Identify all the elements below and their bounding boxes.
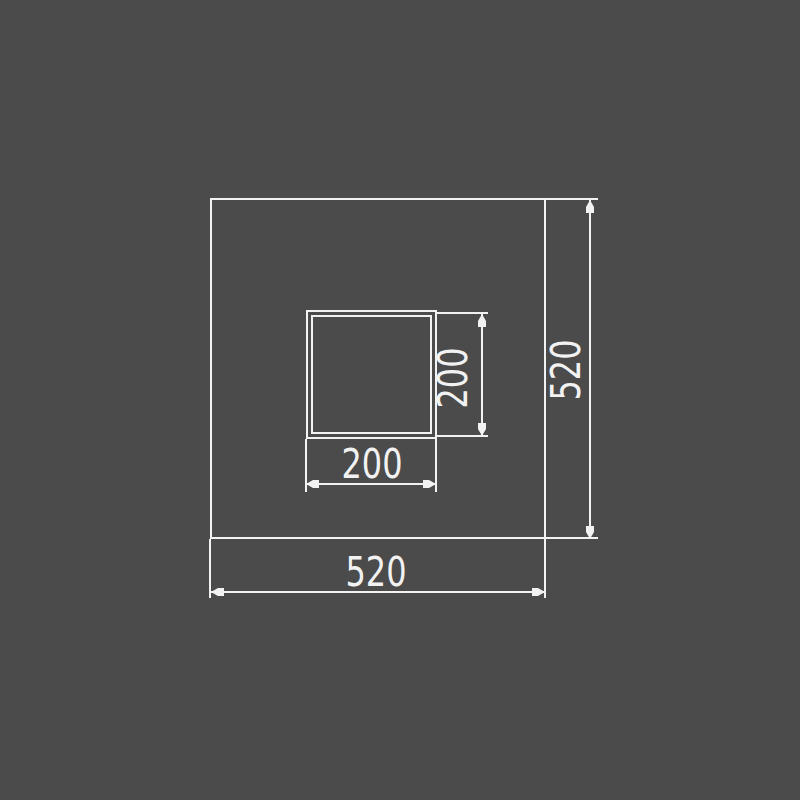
arrowhead-tail xyxy=(313,480,319,488)
arrowhead-tail xyxy=(478,321,486,327)
arrowhead-tail xyxy=(478,423,486,429)
arrowhead-down-icon xyxy=(586,532,594,539)
dimension-value-outer-width: 520 xyxy=(336,552,416,592)
arrowhead-left-icon xyxy=(306,480,313,488)
inner-square-outline-inner xyxy=(311,315,432,434)
arrowhead-tail xyxy=(532,588,538,596)
arrowhead-tail xyxy=(423,480,429,488)
arrowhead-down-icon xyxy=(478,429,486,436)
dimension-line xyxy=(589,200,591,539)
arrowhead-tail xyxy=(218,588,224,596)
dimension-value-inner-width: 200 xyxy=(332,444,412,484)
arrowhead-tail xyxy=(586,207,594,213)
arrowhead-up-icon xyxy=(478,314,486,321)
dimension-line xyxy=(481,314,483,437)
dimension-value-outer-height: 520 xyxy=(546,330,586,410)
arrowhead-up-icon xyxy=(586,200,594,207)
arrowhead-left-icon xyxy=(211,588,218,596)
arrowhead-tail xyxy=(586,526,594,532)
dimension-value-inner-height: 200 xyxy=(433,338,473,418)
arrowhead-right-icon xyxy=(538,588,545,596)
technical-drawing-canvas: 520 520 200 200 xyxy=(0,0,800,800)
arrowhead-right-icon xyxy=(429,480,436,488)
